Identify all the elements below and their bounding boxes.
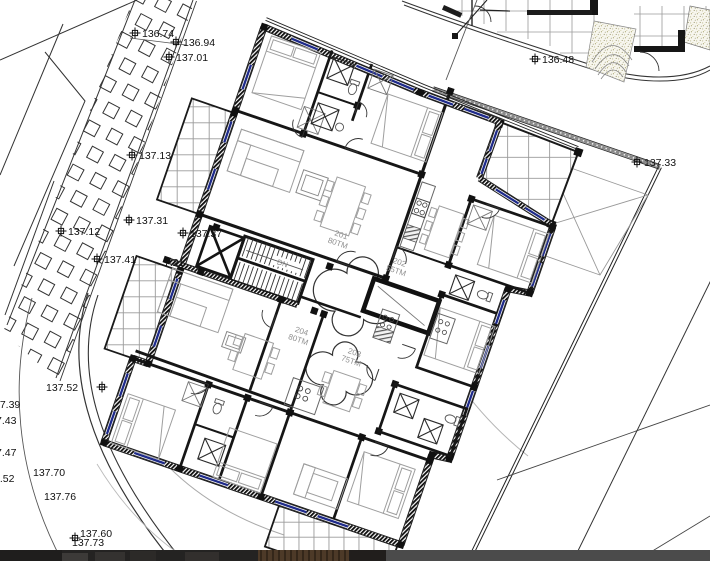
svg-text:137.52: 137.52 — [46, 382, 78, 394]
svg-text:7.21: 7.21 — [164, 257, 185, 269]
svg-text:137.70: 137.70 — [33, 467, 65, 479]
svg-text:137.12: 137.12 — [68, 226, 100, 238]
svg-text:137.41: 137.41 — [104, 254, 136, 266]
svg-text:7.47: 7.47 — [0, 447, 17, 459]
svg-text:137.01: 137.01 — [176, 52, 208, 64]
svg-text:137.13: 137.13 — [139, 150, 171, 162]
svg-text:137.76: 137.76 — [44, 491, 76, 503]
svg-text:137.31: 137.31 — [136, 215, 168, 227]
svg-text:137.73: 137.73 — [72, 537, 104, 549]
svg-text:136.74: 136.74 — [142, 28, 174, 40]
svg-text:37.39: 37.39 — [0, 399, 20, 411]
svg-text:7.43: 7.43 — [0, 415, 17, 427]
svg-text:136.94: 136.94 — [183, 37, 215, 49]
svg-text:136.48: 136.48 — [542, 54, 574, 66]
svg-text:137.33: 137.33 — [644, 157, 676, 169]
svg-text:7.52: 7.52 — [0, 473, 15, 485]
svg-text:137.37: 137.37 — [190, 228, 222, 240]
